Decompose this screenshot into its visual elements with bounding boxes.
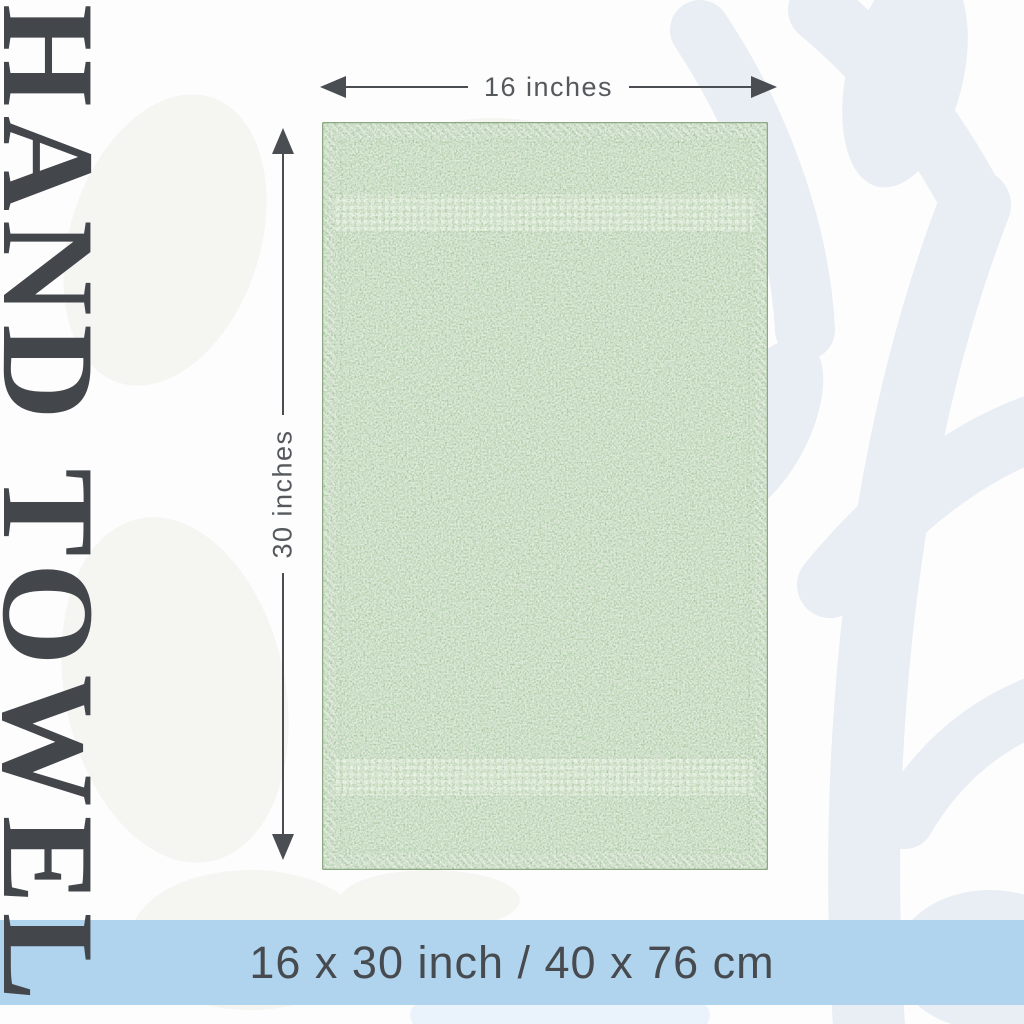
arrow-up-icon — [272, 128, 294, 154]
dimension-line-bottom — [282, 573, 284, 834]
towel-image — [322, 122, 768, 870]
vertical-title: HAND TOWEL — [0, 4, 114, 1010]
size-banner-text: 16 x 30 inch / 40 x 76 cm — [249, 937, 774, 989]
height-dimension: 30 inches — [268, 128, 298, 860]
dimension-line-left — [346, 86, 468, 88]
height-dimension-label: 30 inches — [268, 429, 299, 558]
dimension-line-right — [629, 86, 751, 88]
width-dimension: 16 inches — [320, 73, 777, 101]
size-banner: 16 x 30 inch / 40 x 76 cm — [0, 920, 1024, 1005]
towel-graphic — [322, 122, 768, 870]
dimension-line-top — [282, 154, 284, 415]
arrow-right-icon — [751, 76, 777, 98]
height-dimension-labelbox: 30 inches — [268, 415, 298, 573]
arrow-left-icon — [320, 76, 346, 98]
arrow-down-icon — [272, 834, 294, 860]
width-dimension-label: 16 inches — [468, 72, 629, 103]
product-image: 16 inches 30 inches — [0, 0, 1024, 1024]
